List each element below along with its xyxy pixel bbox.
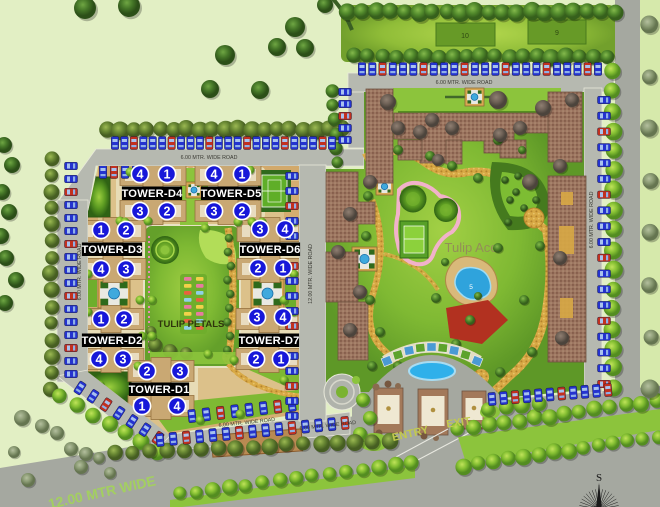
svg-text:2: 2 [164,204,171,218]
svg-text:2: 2 [121,312,128,326]
svg-text:TULIP PETALS: TULIP PETALS [158,319,225,330]
svg-text:2: 2 [144,364,151,378]
svg-text:3: 3 [137,204,144,218]
svg-text:3: 3 [120,352,127,366]
svg-text:10: 10 [461,33,469,40]
svg-text:TOWER-D1: TOWER-D1 [128,384,189,396]
svg-text:3: 3 [257,222,264,236]
svg-text:3: 3 [211,204,218,218]
svg-text:2: 2 [123,223,130,237]
svg-text:2: 2 [255,261,262,275]
svg-text:9: 9 [555,30,559,37]
svg-text:6.00 MTR. WIDE ROAD: 6.00 MTR. WIDE ROAD [436,80,493,86]
svg-text:4: 4 [174,399,181,413]
svg-text:4: 4 [282,222,289,236]
svg-text:3: 3 [254,310,261,324]
svg-text:1: 1 [98,312,105,326]
svg-text:TOWER-D6: TOWER-D6 [239,244,300,256]
svg-text:3: 3 [177,364,184,378]
svg-text:1: 1 [280,261,287,275]
svg-text:6.00 MTR. WIDE ROAD: 6.00 MTR. WIDE ROAD [181,155,238,161]
svg-text:S: S [596,472,602,484]
svg-text:1: 1 [164,167,171,181]
svg-text:TOWER-D7: TOWER-D7 [238,335,299,347]
svg-text:1: 1 [98,223,105,237]
svg-text:4: 4 [211,167,218,181]
svg-text:TOWER-D2: TOWER-D2 [81,335,142,347]
svg-text:5: 5 [469,284,473,291]
svg-text:TOWER-D3: TOWER-D3 [81,244,142,256]
svg-text:4: 4 [280,310,287,324]
svg-text:6.00 MTR. WIDE ROAD: 6.00 MTR. WIDE ROAD [589,191,595,248]
svg-text:3: 3 [123,262,130,276]
svg-text:2: 2 [253,352,260,366]
svg-text:4: 4 [98,262,105,276]
svg-text:1: 1 [278,352,285,366]
svg-text:4: 4 [137,167,144,181]
svg-text:1: 1 [239,167,246,181]
svg-text:TOWER-D5: TOWER-D5 [200,188,261,200]
svg-text:12.00 MTR. WIDE ROAD: 12.00 MTR. WIDE ROAD [308,244,314,304]
svg-text:Tulip Ace: Tulip Ace [445,240,498,255]
svg-text:TOWER-D4: TOWER-D4 [121,188,183,200]
svg-text:4: 4 [96,352,103,366]
svg-text:1: 1 [139,399,146,413]
svg-text:2: 2 [239,204,246,218]
